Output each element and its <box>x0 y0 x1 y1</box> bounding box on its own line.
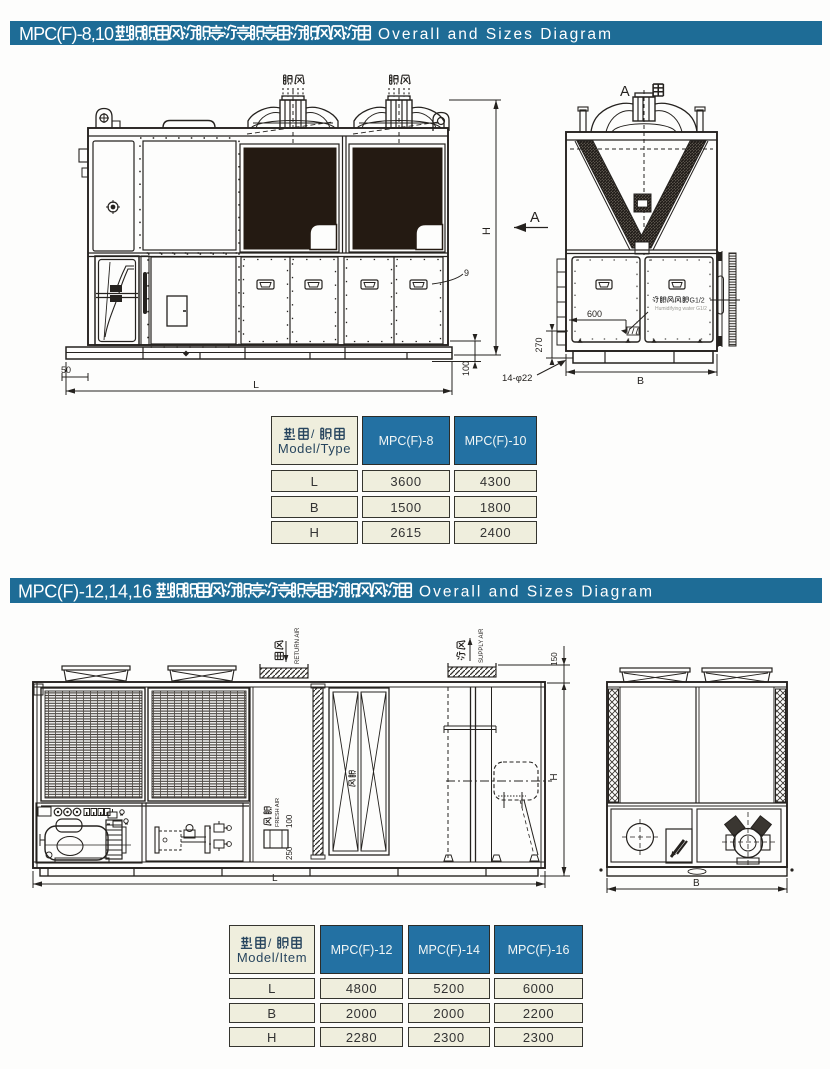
svg-text:100: 100 <box>285 814 294 828</box>
svg-text:B: B <box>693 878 700 889</box>
svg-text:250: 250 <box>285 846 294 860</box>
svg-text:150: 150 <box>550 652 559 666</box>
svg-text:/: / <box>268 936 272 950</box>
svg-text:H: H <box>549 773 560 780</box>
svg-text:FRESH AIR: FRESH AIR <box>275 798 281 827</box>
svg-text:L: L <box>272 873 278 884</box>
svg-text:SUPPLY AIR: SUPPLY AIR <box>479 628 485 663</box>
svg-text:RETURN AIR: RETURN AIR <box>295 627 301 664</box>
